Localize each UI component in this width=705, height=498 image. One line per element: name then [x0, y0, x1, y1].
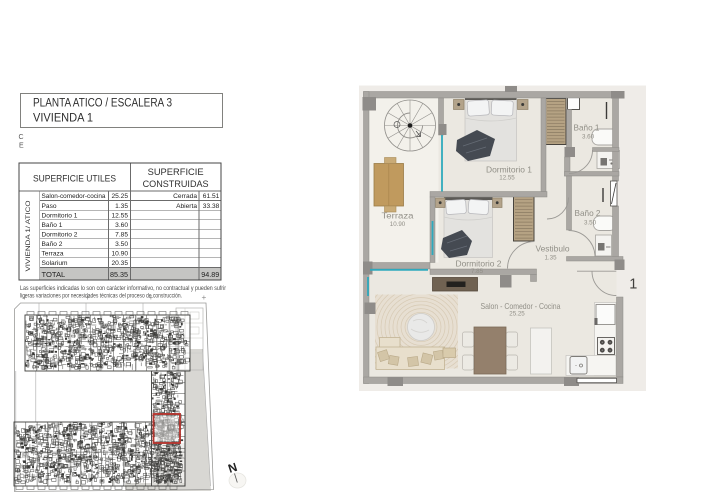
svg-text:3.60: 3.60 — [582, 134, 595, 141]
svg-text:Dormitorio 1: Dormitorio 1 — [42, 212, 78, 219]
svg-text:7.85: 7.85 — [471, 268, 484, 275]
svg-text:3.60: 3.60 — [115, 222, 128, 229]
svg-text:CONSTRUIDAS: CONSTRUIDAS — [143, 179, 209, 189]
svg-text:25.25: 25.25 — [509, 311, 525, 318]
svg-text:33.38: 33.38 — [203, 203, 220, 210]
svg-text:PLANTA ATICO / ESCALERA 3: PLANTA ATICO / ESCALERA 3 — [33, 98, 172, 110]
svg-text:Terraza: Terraza — [382, 212, 415, 221]
svg-text:Vestibulo: Vestibulo — [536, 245, 570, 254]
svg-text:Salon-comedor-cocina: Salon-comedor-cocina — [42, 193, 106, 200]
svg-text:Baño 2: Baño 2 — [575, 209, 601, 218]
svg-text:C: C — [19, 134, 24, 141]
svg-text:VIVIENDA 1/ ATICO: VIVIENDA 1/ ATICO — [25, 201, 32, 272]
svg-text:Cerrada: Cerrada — [173, 193, 197, 200]
svg-text:85.35: 85.35 — [110, 270, 128, 279]
svg-text:Terraza: Terraza — [42, 251, 64, 258]
svg-text:VIVIENDA 1: VIVIENDA 1 — [33, 113, 93, 125]
svg-text:TOTAL: TOTAL — [42, 270, 66, 279]
svg-text:Solarium: Solarium — [42, 260, 69, 267]
svg-text:SUPERFICIE: SUPERFICIE — [148, 167, 204, 177]
svg-text:3.50: 3.50 — [584, 220, 597, 227]
svg-text:1: 1 — [629, 277, 637, 293]
svg-text:12.55: 12.55 — [111, 212, 128, 219]
svg-text:Dormitorio 1: Dormitorio 1 — [486, 166, 532, 175]
svg-text:Dormitorio 2: Dormitorio 2 — [42, 231, 78, 238]
svg-text:ligeras variaciones por necesi: ligeras variaciones por necesidades técn… — [20, 293, 182, 300]
svg-text:10.90: 10.90 — [111, 251, 128, 258]
svg-text:1.35: 1.35 — [544, 255, 557, 262]
svg-text:E: E — [19, 143, 24, 150]
svg-text:Las superficies indicadas lo s: Las superficies indicadas lo son con car… — [20, 285, 227, 292]
svg-text:1.35: 1.35 — [115, 203, 128, 210]
svg-text:20.35: 20.35 — [111, 260, 128, 267]
svg-text:94.89: 94.89 — [201, 270, 219, 279]
svg-text:Baño 2: Baño 2 — [42, 241, 63, 248]
svg-text:7.85: 7.85 — [115, 231, 128, 238]
svg-text:Abierta: Abierta — [176, 203, 197, 210]
svg-text:61.51: 61.51 — [203, 193, 220, 200]
svg-text:3.50: 3.50 — [115, 241, 128, 248]
svg-text:Paso: Paso — [42, 203, 57, 210]
svg-text:10.90: 10.90 — [390, 221, 406, 228]
svg-text:SUPERFICIE UTILES: SUPERFICIE UTILES — [33, 174, 116, 184]
svg-text:12.55: 12.55 — [499, 175, 515, 182]
svg-text:25.25: 25.25 — [111, 193, 128, 200]
svg-text:Baño 1: Baño 1 — [42, 222, 63, 229]
svg-text:Baño 1: Baño 1 — [574, 124, 600, 133]
